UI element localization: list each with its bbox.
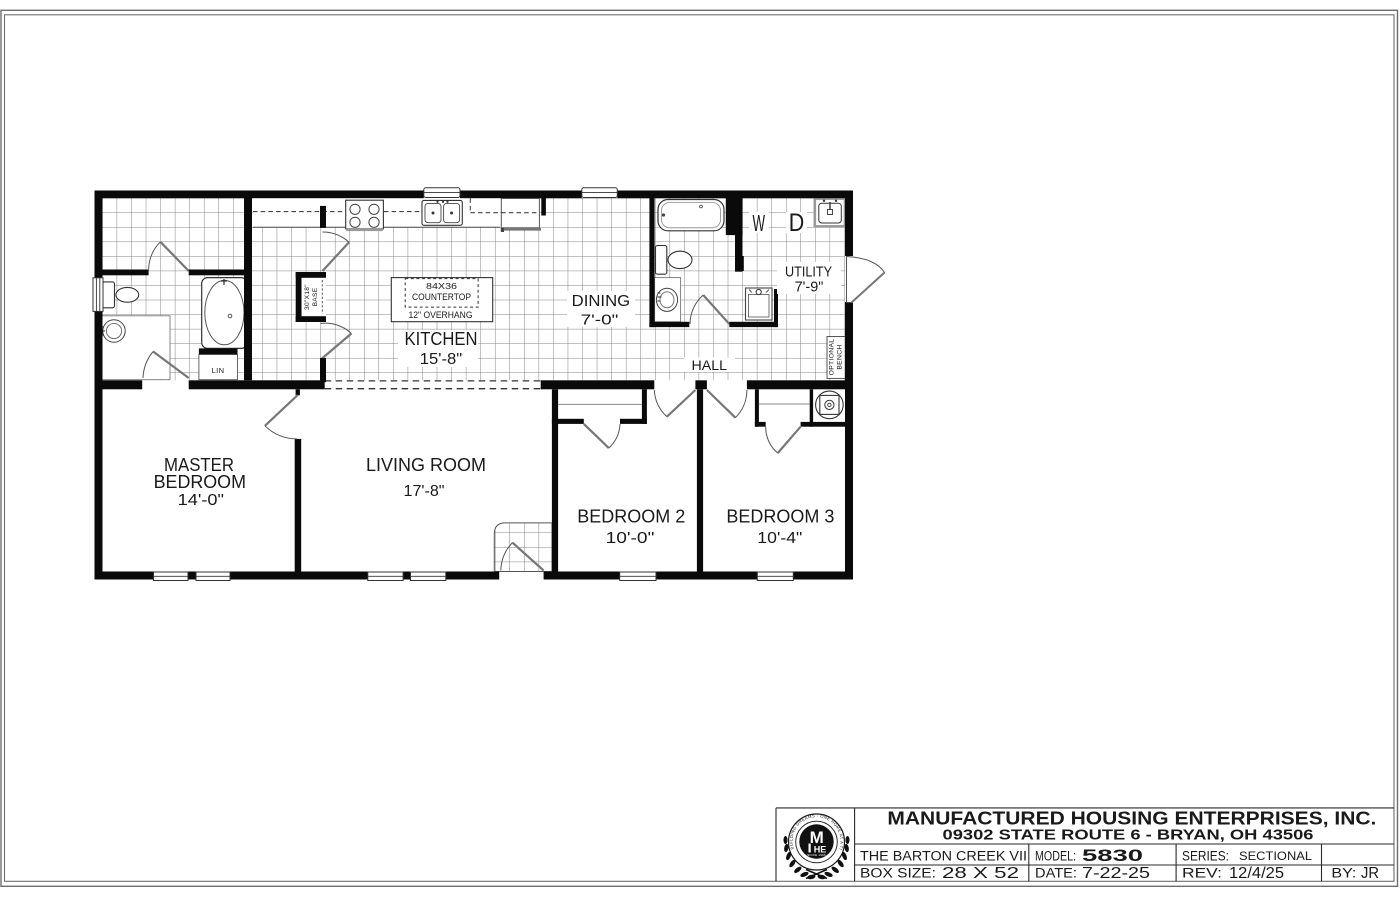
svg-text:DATE:: DATE: bbox=[1035, 866, 1077, 881]
svg-text:BOX SIZE:: BOX SIZE: bbox=[860, 866, 936, 881]
svg-text:SECTIONAL: SECTIONAL bbox=[1239, 851, 1313, 863]
svg-text:12" OVERHANG: 12" OVERHANG bbox=[409, 310, 473, 320]
svg-text:HALL: HALL bbox=[692, 358, 728, 373]
svg-text:10'-0": 10'-0" bbox=[606, 530, 655, 547]
svg-text:15'-8": 15'-8" bbox=[420, 351, 462, 368]
svg-text:JR: JR bbox=[1361, 865, 1379, 882]
svg-text:LIVING ROOM: LIVING ROOM bbox=[366, 454, 486, 475]
svg-text:10'-4": 10'-4" bbox=[757, 530, 802, 547]
svg-text:BENCH: BENCH bbox=[837, 344, 844, 369]
svg-text:OPTIONAL: OPTIONAL bbox=[829, 339, 836, 376]
svg-text:SERIES:: SERIES: bbox=[1182, 849, 1229, 864]
svg-text:7'-9": 7'-9" bbox=[795, 279, 824, 296]
svg-text:09302 STATE ROUTE 6 - BRYAN, O: 09302 STATE ROUTE 6 - BRYAN, OH 43506 bbox=[943, 828, 1314, 844]
svg-text:5830: 5830 bbox=[1082, 846, 1143, 865]
svg-text:14'-0": 14'-0" bbox=[178, 492, 224, 509]
svg-text:DINING: DINING bbox=[572, 293, 631, 310]
svg-text:7'-0": 7'-0" bbox=[581, 312, 619, 329]
svg-text:LIN: LIN bbox=[212, 366, 225, 375]
svg-text:THE BARTON CREEK VII: THE BARTON CREEK VII bbox=[860, 849, 1027, 864]
svg-text:84X36: 84X36 bbox=[426, 282, 458, 291]
svg-text:BASE: BASE bbox=[312, 287, 319, 306]
svg-text:MODEL:: MODEL: bbox=[1035, 849, 1076, 864]
svg-text:BY:: BY: bbox=[1331, 866, 1356, 881]
svg-text:D: D bbox=[789, 209, 805, 237]
svg-text:BEDROOM 2: BEDROOM 2 bbox=[577, 506, 685, 527]
svg-text:COUNTERTOP: COUNTERTOP bbox=[412, 292, 471, 302]
svg-text:MANUFACTURED HOUSING ENTERPRIS: MANUFACTURED HOUSING ENTERPRISES, INC. bbox=[887, 809, 1376, 829]
svg-text:30"X18": 30"X18" bbox=[304, 284, 311, 310]
svg-text:REV:: REV: bbox=[1182, 866, 1222, 881]
svg-text:17'-8": 17'-8" bbox=[404, 483, 445, 500]
svg-text:SINCE 1965: SINCE 1965 bbox=[807, 853, 826, 857]
svg-text:KITCHEN: KITCHEN bbox=[405, 328, 478, 349]
svg-text:7-22-25: 7-22-25 bbox=[1082, 865, 1150, 882]
svg-text:BEDROOM: BEDROOM bbox=[154, 471, 246, 492]
svg-text:28 X 52: 28 X 52 bbox=[942, 865, 1019, 882]
svg-text:12/4/25: 12/4/25 bbox=[1229, 865, 1284, 882]
svg-text:BEDROOM 3: BEDROOM 3 bbox=[726, 506, 834, 527]
svg-text:W: W bbox=[753, 210, 766, 236]
